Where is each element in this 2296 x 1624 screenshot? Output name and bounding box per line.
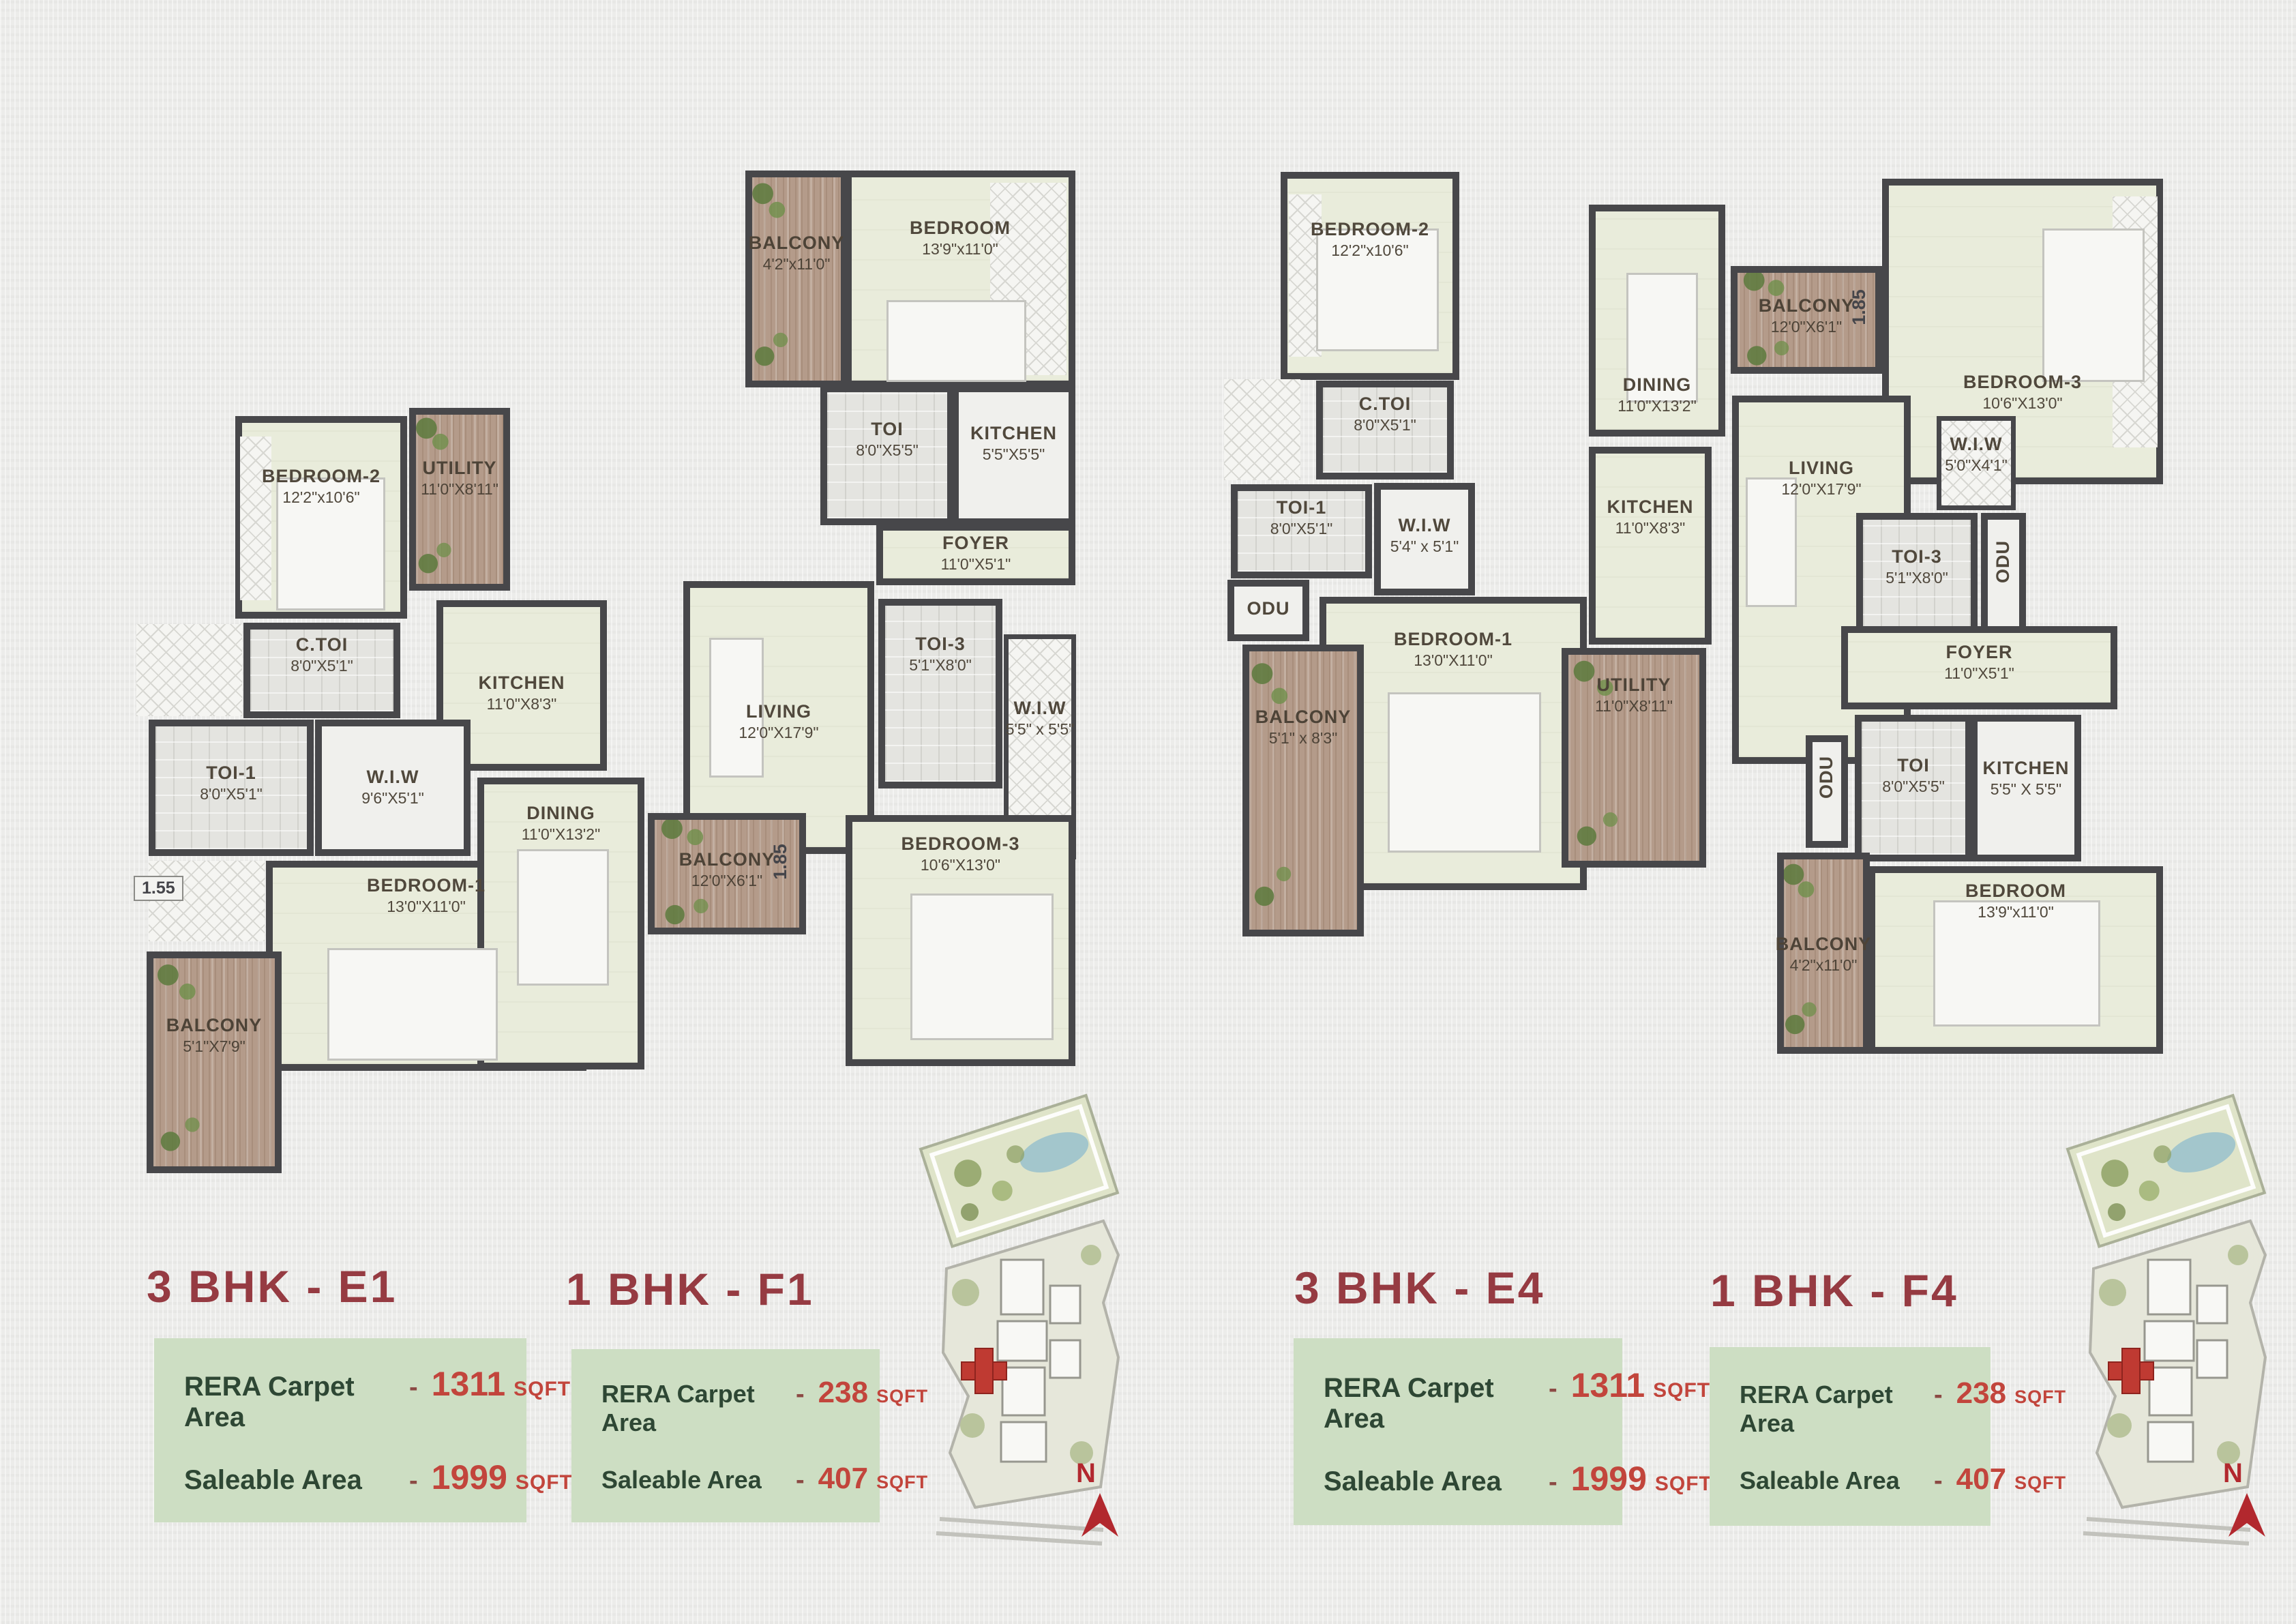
furniture-bed [1388, 692, 1541, 853]
unit-title-3bhk-e4: 3 BHK - E4 [1294, 1262, 1545, 1314]
area-value: 407 [818, 1462, 868, 1496]
svg-text:N: N [2223, 1458, 2243, 1488]
landscape-area [921, 1095, 1118, 1246]
area-row: Saleable Area-1999SQFT [1324, 1459, 1592, 1498]
unit-title-1bhk-f4: 1 BHK - F4 [1710, 1265, 1958, 1316]
tower-block [1050, 1340, 1080, 1378]
room-kitchen-f1: KITCHEN5'5"X5'5" [952, 385, 1075, 525]
room-kitchen-f4: KITCHEN5'5" X 5'5" [1971, 715, 2081, 861]
area-value: 407 [1956, 1462, 2006, 1496]
room-wiw-2: W.I.W5'0"X4'1" [1937, 416, 2016, 510]
site-plan-map: N [899, 1081, 1134, 1589]
room-balcony: BALCONY4'2"x11'0" [745, 171, 848, 387]
area-label: RERA Carpet Area [601, 1380, 796, 1437]
tower-block [1050, 1286, 1080, 1323]
room-utility: UTILITY11'0"X8'11" [1562, 648, 1706, 868]
area-row: Saleable Area-407SQFT [601, 1462, 850, 1496]
furniture-bed [910, 894, 1054, 1040]
room-toi: TOI8'0"X5'5" [820, 385, 954, 525]
room-balcony-2: BALCONY5'1" x 8'3" [1242, 645, 1364, 936]
tower-block [1002, 1368, 1045, 1415]
svg-text:N: N [1076, 1458, 1096, 1488]
area-label: RERA Carpet Area [1324, 1373, 1549, 1434]
level-marker: 1.85 [1849, 289, 1870, 325]
area-label: Saleable Area [601, 1466, 796, 1494]
area-row: RERA Carpet Area-1311SQFT [1324, 1365, 1592, 1434]
level-marker: 1.85 [770, 844, 791, 880]
area-label: RERA Carpet Area [184, 1372, 409, 1433]
room-kitchen-e4: KITCHEN11'0"X8'3" [1589, 447, 1712, 645]
road [936, 1519, 1103, 1544]
wardrobe-hatch [240, 437, 271, 600]
tower-block [1001, 1260, 1043, 1314]
room-wiw-2: W.I.W9'6"X5'1" [315, 720, 471, 856]
area-value: 1311 [432, 1364, 505, 1404]
tower-block [2148, 1260, 2190, 1314]
room-balcony-3: BALCONY5'1"X7'9" [147, 951, 282, 1173]
room-toi: TOI8'0"X5'5" [1855, 715, 1972, 861]
road [2083, 1519, 2250, 1544]
room-foyer: FOYER11'0"X5'1" [1841, 626, 2117, 709]
area-box-f1: RERA Carpet Area-238SQFT Saleable Area-4… [571, 1349, 880, 1522]
tower-block [2197, 1286, 2227, 1323]
room-odu-3: ODU [1806, 735, 1848, 848]
room-utility: UTILITY11'0"X8'11" [409, 408, 510, 591]
area-value: 238 [818, 1376, 868, 1410]
tower-block [998, 1321, 1047, 1361]
tower-block [2149, 1368, 2192, 1415]
room-toi-3: TOI-35'1"X8'0" [878, 599, 1002, 788]
room-odu-2: ODU [1227, 580, 1309, 641]
furniture-bed [327, 948, 498, 1061]
room-c-toi: C.TOI8'0"X5'1" [1316, 381, 1454, 479]
landscape-area [2068, 1095, 2265, 1246]
shaft-hatch [149, 861, 265, 941]
tower-block [2145, 1321, 2194, 1361]
area-row: RERA Carpet Area-238SQFT [601, 1376, 850, 1437]
room-c-toi: C.TOI8'0"X5'1" [243, 623, 400, 718]
area-box-f4: RERA Carpet Area-238SQFT Saleable Area-4… [1710, 1347, 1991, 1526]
area-row: Saleable Area-407SQFT [1740, 1462, 1960, 1496]
area-label: Saleable Area [184, 1465, 409, 1496]
level-marker: 1.55 [134, 876, 183, 901]
store-hatch [1224, 379, 1300, 480]
room-wiw: W.I.W5'4" x 5'1" [1374, 483, 1475, 595]
site-plan-map: N [2046, 1081, 2281, 1589]
unit-title-3bhk-e1: 3 BHK - E1 [147, 1260, 397, 1312]
area-label: RERA Carpet Area [1740, 1381, 1934, 1438]
store-hatch [136, 624, 242, 716]
area-box-e1: RERA Carpet Area-1311SQFT Saleable Area-… [154, 1338, 526, 1522]
area-row: RERA Carpet Area-1311SQFT [184, 1364, 496, 1433]
tower-block [2197, 1340, 2227, 1378]
area-label: Saleable Area [1324, 1466, 1549, 1497]
brochure-page: BALCONY4'2"x11'0" BEDROOM13'9"x11'0" TOI… [0, 0, 2296, 1624]
area-row: Saleable Area-1999SQFT [184, 1458, 496, 1497]
area-value: 1311 [1571, 1365, 1645, 1405]
room-foyer: FOYER11'0"X5'1" [876, 524, 1075, 585]
area-label: Saleable Area [1740, 1466, 1934, 1495]
room-toi-1: TOI-18'0"X5'1" [149, 720, 314, 856]
area-box-e4: RERA Carpet Area-1311SQFT Saleable Area-… [1294, 1338, 1622, 1525]
area-value: 1999 [432, 1458, 507, 1497]
furniture-bed [2042, 228, 2145, 382]
area-value: 238 [1956, 1376, 2006, 1411]
unit-title-1bhk-f1: 1 BHK - F1 [566, 1263, 814, 1315]
tower-block [2148, 1422, 2193, 1462]
area-row: RERA Carpet Area-238SQFT [1740, 1376, 1960, 1438]
room-balcony-3: BALCONY4'2"x11'0" [1777, 853, 1870, 1054]
area-value: 1999 [1571, 1459, 1647, 1498]
furniture-bed [886, 300, 1026, 382]
furniture-dining-table [517, 849, 609, 986]
tower-block [1001, 1422, 1046, 1462]
room-toi-1: TOI-18'0"X5'1" [1231, 484, 1372, 578]
